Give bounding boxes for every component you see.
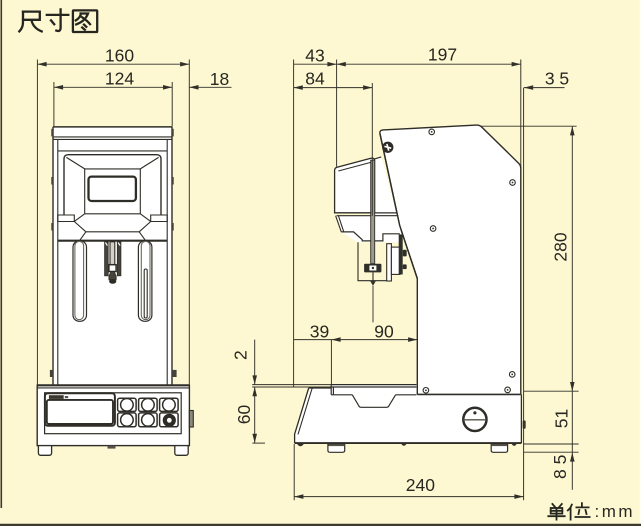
svg-text:60: 60 — [234, 405, 254, 425]
svg-text:18: 18 — [210, 69, 229, 89]
svg-text:51: 51 — [552, 409, 572, 428]
svg-text:90: 90 — [374, 321, 394, 341]
svg-text::mm: :mm — [595, 502, 636, 521]
svg-text:240: 240 — [406, 475, 435, 495]
svg-text:8 5: 8 5 — [550, 455, 570, 479]
svg-text:39: 39 — [310, 321, 329, 341]
svg-text:160: 160 — [105, 45, 134, 65]
svg-text:3 5: 3 5 — [545, 68, 569, 88]
svg-text:124: 124 — [105, 69, 134, 89]
svg-text:197: 197 — [428, 44, 457, 64]
svg-text:43: 43 — [305, 45, 324, 65]
svg-text:2: 2 — [230, 350, 250, 360]
svg-text:280: 280 — [551, 232, 571, 261]
svg-text:84: 84 — [305, 69, 325, 89]
